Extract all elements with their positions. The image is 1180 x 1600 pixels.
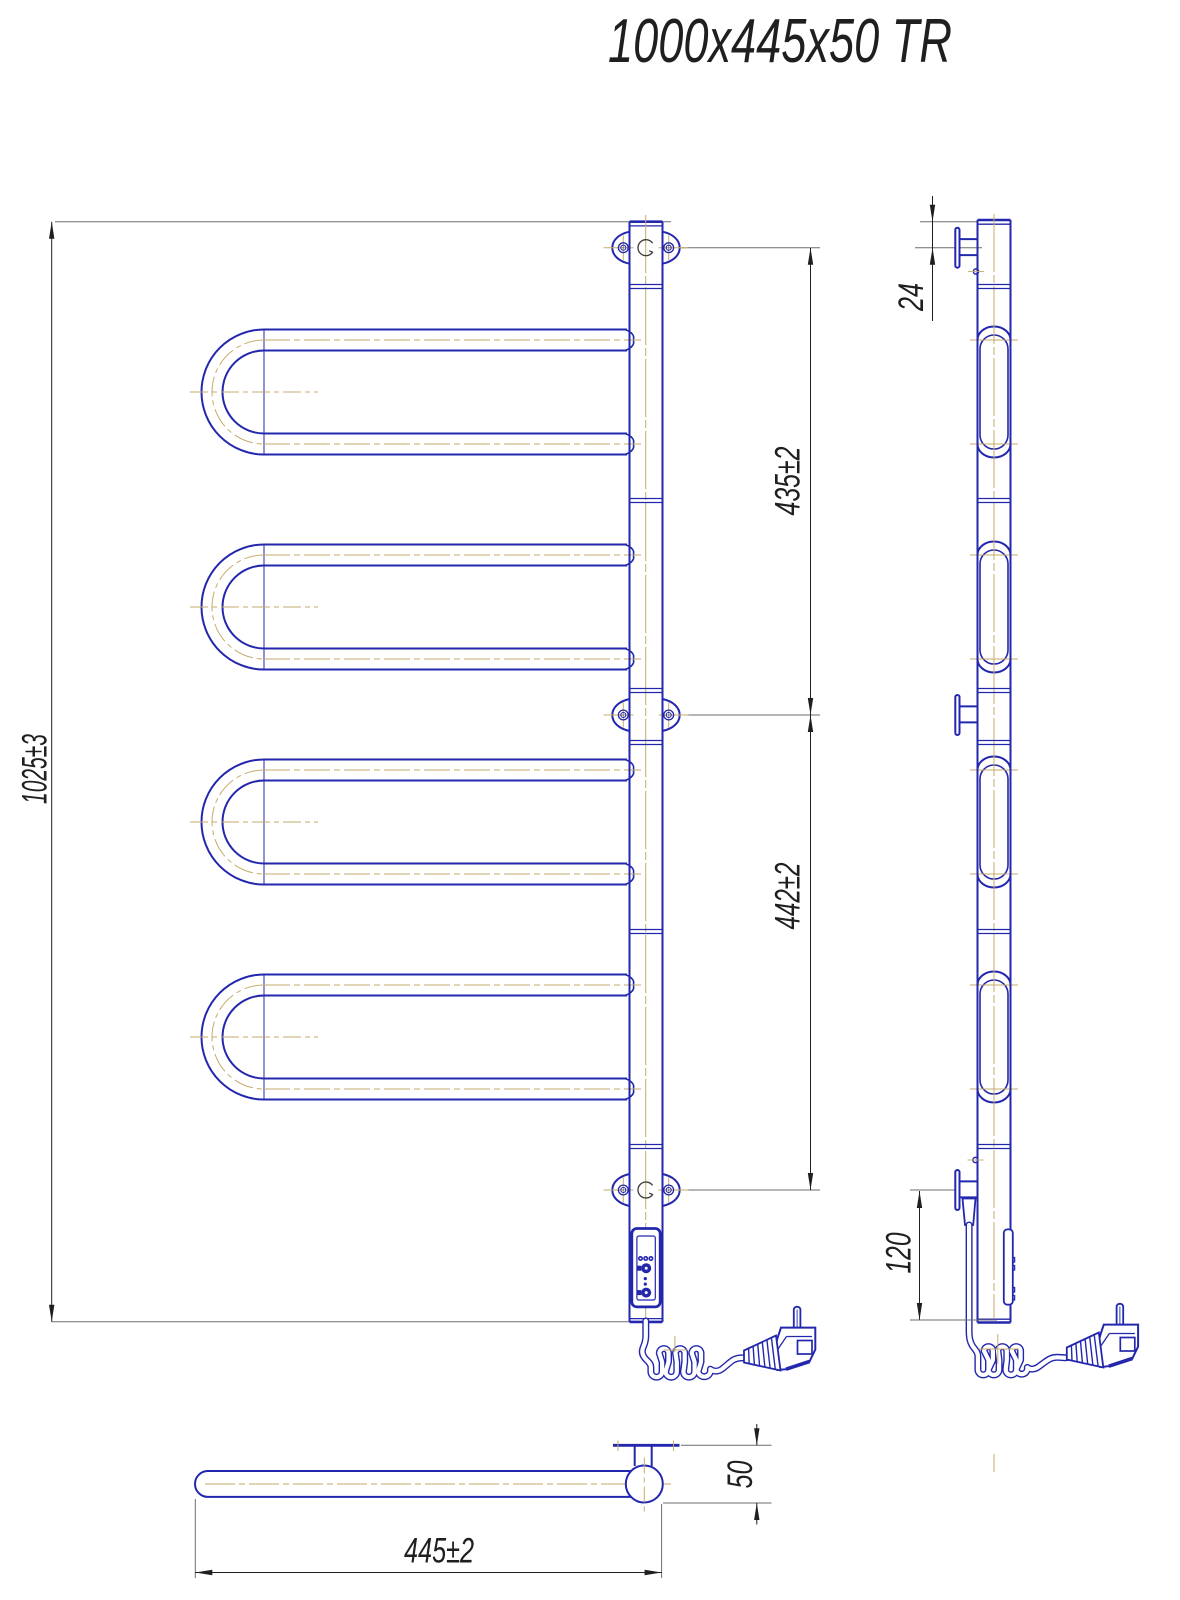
svg-text:24: 24 [892, 283, 931, 312]
svg-text:50: 50 [721, 1460, 760, 1488]
svg-text:445±2: 445±2 [404, 1532, 474, 1571]
svg-text:442±2: 442±2 [769, 863, 808, 930]
svg-text:1000x445x50 TR: 1000x445x50 TR [608, 7, 952, 76]
svg-text:120: 120 [880, 1232, 919, 1273]
svg-text:1025±3: 1025±3 [16, 734, 55, 804]
svg-text:435±2: 435±2 [769, 447, 808, 516]
